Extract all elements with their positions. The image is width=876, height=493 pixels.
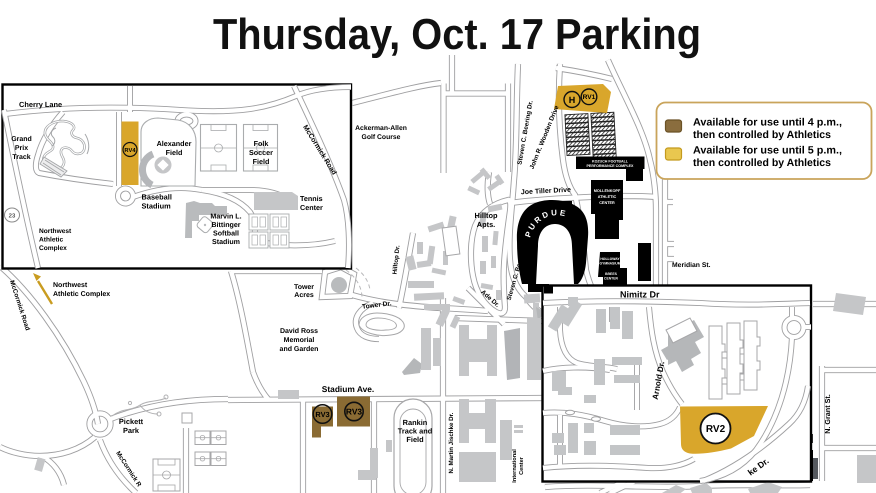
svg-text:Tower: Tower xyxy=(294,284,314,291)
svg-text:PERFORMANCE COMPLEX: PERFORMANCE COMPLEX xyxy=(587,164,635,168)
svg-text:Acres: Acres xyxy=(294,292,314,299)
svg-text:Track: Track xyxy=(12,153,30,161)
svg-text:RV3: RV3 xyxy=(346,407,362,417)
svg-text:Stadium: Stadium xyxy=(142,202,172,211)
svg-text:Athletic: Athletic xyxy=(39,237,64,244)
svg-text:H: H xyxy=(569,95,576,105)
svg-text:RV2: RV2 xyxy=(706,424,726,435)
svg-text:Stadium Ave.: Stadium Ave. xyxy=(322,384,374,394)
svg-text:David Ross: David Ross xyxy=(280,327,318,335)
svg-text:Prix: Prix xyxy=(15,144,28,152)
svg-text:International: International xyxy=(511,449,518,483)
svg-text:Northwest: Northwest xyxy=(39,228,72,235)
svg-text:Memorial: Memorial xyxy=(284,336,315,344)
svg-text:Northwest: Northwest xyxy=(53,281,88,289)
svg-text:HOLLOWAY: HOLLOWAY xyxy=(600,257,620,261)
svg-text:Park: Park xyxy=(123,426,140,435)
svg-text:then controlled by Athletics: then controlled by Athletics xyxy=(693,129,831,141)
svg-text:RV1: RV1 xyxy=(583,94,596,101)
svg-text:CENTER: CENTER xyxy=(599,201,615,205)
svg-text:Field: Field xyxy=(406,435,424,444)
svg-text:BREES: BREES xyxy=(605,272,617,276)
svg-text:Field: Field xyxy=(253,157,270,166)
svg-text:Available for use until 5 p.m.: Available for use until 5 p.m., xyxy=(693,145,842,157)
svg-text:Hilltop: Hilltop xyxy=(475,211,498,220)
svg-text:Stadium: Stadium xyxy=(212,238,240,246)
svg-text:Available for use until 4 p.m.: Available for use until 4 p.m., xyxy=(693,117,842,129)
svg-text:N. Martin Jischke Dr.: N. Martin Jischke Dr. xyxy=(448,412,455,473)
svg-text:GYMNASIUM: GYMNASIUM xyxy=(599,262,620,266)
svg-text:Tennis: Tennis xyxy=(300,194,323,203)
svg-text:Nimitz Dr: Nimitz Dr xyxy=(620,290,660,300)
svg-text:RV3: RV3 xyxy=(315,410,329,419)
svg-text:23: 23 xyxy=(9,213,16,220)
svg-text:Ackerman-Allen: Ackerman-Allen xyxy=(355,125,407,132)
svg-text:Folk: Folk xyxy=(254,139,269,148)
svg-text:Meridian St.: Meridian St. xyxy=(672,262,711,269)
svg-text:MOLLENKOPF: MOLLENKOPF xyxy=(594,189,621,193)
svg-text:RV4: RV4 xyxy=(124,148,136,154)
svg-text:Thursday, Oct. 17 Parking: Thursday, Oct. 17 Parking xyxy=(213,11,701,59)
svg-text:then controlled by Athletics: then controlled by Athletics xyxy=(693,157,831,169)
svg-text:Apts.: Apts. xyxy=(477,220,495,229)
svg-text:Alexander: Alexander xyxy=(157,139,192,148)
svg-text:Pickett: Pickett xyxy=(119,417,144,426)
svg-text:Bittinger: Bittinger xyxy=(211,221,240,229)
svg-text:Softball: Softball xyxy=(213,230,239,238)
svg-text:Marvin L.: Marvin L. xyxy=(210,213,241,221)
svg-text:Golf Course: Golf Course xyxy=(362,134,401,141)
svg-text:Grand: Grand xyxy=(11,135,32,143)
svg-text:CENTER: CENTER xyxy=(604,277,618,281)
svg-text:Field: Field xyxy=(166,148,183,157)
svg-text:Complex: Complex xyxy=(39,245,67,252)
svg-text:Cherry Lane: Cherry Lane xyxy=(19,100,62,109)
svg-text:Soccer: Soccer xyxy=(249,148,273,157)
svg-text:Center: Center xyxy=(519,456,525,475)
svg-text:KOZUCH FOOTBALL: KOZUCH FOOTBALL xyxy=(592,160,629,164)
svg-text:Center: Center xyxy=(300,203,323,212)
svg-text:Baseball: Baseball xyxy=(142,193,172,202)
svg-text:ATHLETIC: ATHLETIC xyxy=(598,195,617,199)
svg-text:Athletic Complex: Athletic Complex xyxy=(53,290,110,298)
svg-text:and Garden: and Garden xyxy=(280,345,319,353)
svg-text:N. Grant St.: N. Grant St. xyxy=(823,394,832,434)
